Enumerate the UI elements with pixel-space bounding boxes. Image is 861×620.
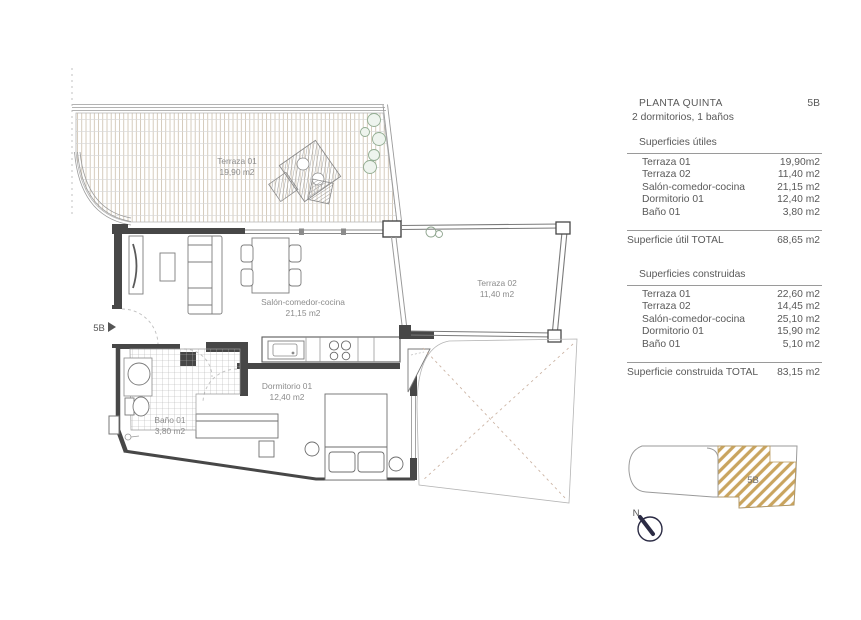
entrance-arrow-icon [108,322,116,332]
area-row-value: 3,80 m2 [783,207,822,219]
area-row: Terraza 01 22,60 m2 [627,289,822,301]
terrace01-area-label: 19,90 m2 [220,167,255,177]
area-row-label: Salón-comedor-cocina [627,314,745,326]
useful-total-label: Superficie útil TOTAL [627,234,724,247]
unit-code: 5B [807,97,822,110]
area-row-value: 15,90 m2 [777,326,822,338]
area-row-value: 25,10 m2 [777,314,822,326]
area-row: Baño 01 3,80 m2 [627,207,822,219]
living-room: Salón-comedor-cocina 21,15 m2 [129,236,400,362]
divider [627,153,822,154]
area-row-label: Terraza 02 [627,301,691,313]
entrance-unit-label: 5B [93,323,105,334]
area-row-value: 19,90m2 [780,157,822,169]
area-row-label: Baño 01 [627,339,680,351]
bedside-table [305,442,319,456]
built-total-row: Superficie construida TOTAL 83,15 m2 [627,366,822,379]
area-row: Salón-comedor-cocina 21,15 m2 [627,182,822,194]
salon-name-label: Salón-comedor-cocina [261,297,345,307]
bathroom-name-label: Baño 01 [154,415,186,425]
area-row-value: 5,10 m2 [783,339,822,351]
bed [325,394,387,480]
area-row: Terraza 02 14,45 m2 [627,301,822,313]
plan-subtitle: 2 dormitorios, 1 baños [627,111,822,125]
keyplan: 5B [629,446,797,508]
area-row: Terraza 01 19,90m2 [627,157,822,169]
terrace-02: Terraza 02 11,40 m2 [392,222,571,342]
bedroom-area-label: 12,40 m2 [270,392,305,402]
terrace-railing-top [72,105,386,111]
sofa [188,236,222,314]
plant-icon [426,227,443,238]
kitchen-counter [262,337,400,362]
useful-total-row: Superficie útil TOTAL 68,65 m2 [627,234,822,247]
area-row-value: 11,40 m2 [778,169,822,181]
area-row-value: 21,15 m2 [777,182,822,194]
divider [627,362,822,363]
washbasin-icon [128,363,150,385]
terrace02-name-label: Terraza 02 [477,278,517,288]
terrace02-area-label: 11,40 m2 [480,289,515,299]
entrance-marker: 5B [93,322,116,334]
area-row-label: Dormitorio 01 [627,326,704,338]
bedroom-name-label: Dormitorio 01 [262,381,313,391]
built-total-value: 83,15 m2 [777,366,822,379]
salon-area-label: 21,15 m2 [286,308,321,318]
useful-total-value: 68,65 m2 [777,234,822,247]
divider [627,230,822,231]
area-row: Dormitorio 01 15,90 m2 [627,326,822,338]
area-row-value: 12,40 m2 [777,194,822,206]
toilet-icon [125,397,149,416]
area-row-label: Baño 01 [627,207,680,219]
bathroom-area-label: 3,80 m2 [155,426,186,436]
built-total-label: Superficie construida TOTAL [627,366,758,379]
area-row-value: 14,45 m2 [777,301,822,313]
area-row: Salón-comedor-cocina 25,10 m2 [627,314,822,326]
north-label: N [633,508,640,519]
north-arrow: N [633,508,662,541]
area-summary-panel: PLANTA QUINTA 5B 2 dormitorios, 1 baños … [627,97,822,379]
area-row: Dormitorio 01 12,40 m2 [627,194,822,206]
built-areas-heading: Superficies construidas [627,268,822,282]
area-row-label: Terraza 02 [627,169,691,181]
area-row: Baño 01 5,10 m2 [627,339,822,351]
area-row: Terraza 02 11,40 m2 [627,169,822,181]
area-row-label: Terraza 01 [627,289,691,301]
dining-table [241,238,301,293]
plan-title: PLANTA QUINTA [627,97,723,110]
area-row-label: Salón-comedor-cocina [627,182,745,194]
wardrobe [196,414,278,457]
area-row-label: Terraza 01 [627,157,691,169]
terrace-01: Terraza 01 19,90 m2 [72,68,402,225]
divider [627,285,822,286]
terrace01-name-label: Terraza 01 [217,156,257,166]
bedside-table-2 [389,457,403,471]
area-row-value: 22,60 m2 [777,289,822,301]
area-row-label: Dormitorio 01 [627,194,704,206]
keyplan-unit-label: 5B [747,475,759,486]
useful-areas-heading: Superficies útiles [627,136,822,150]
void-area [417,339,577,503]
